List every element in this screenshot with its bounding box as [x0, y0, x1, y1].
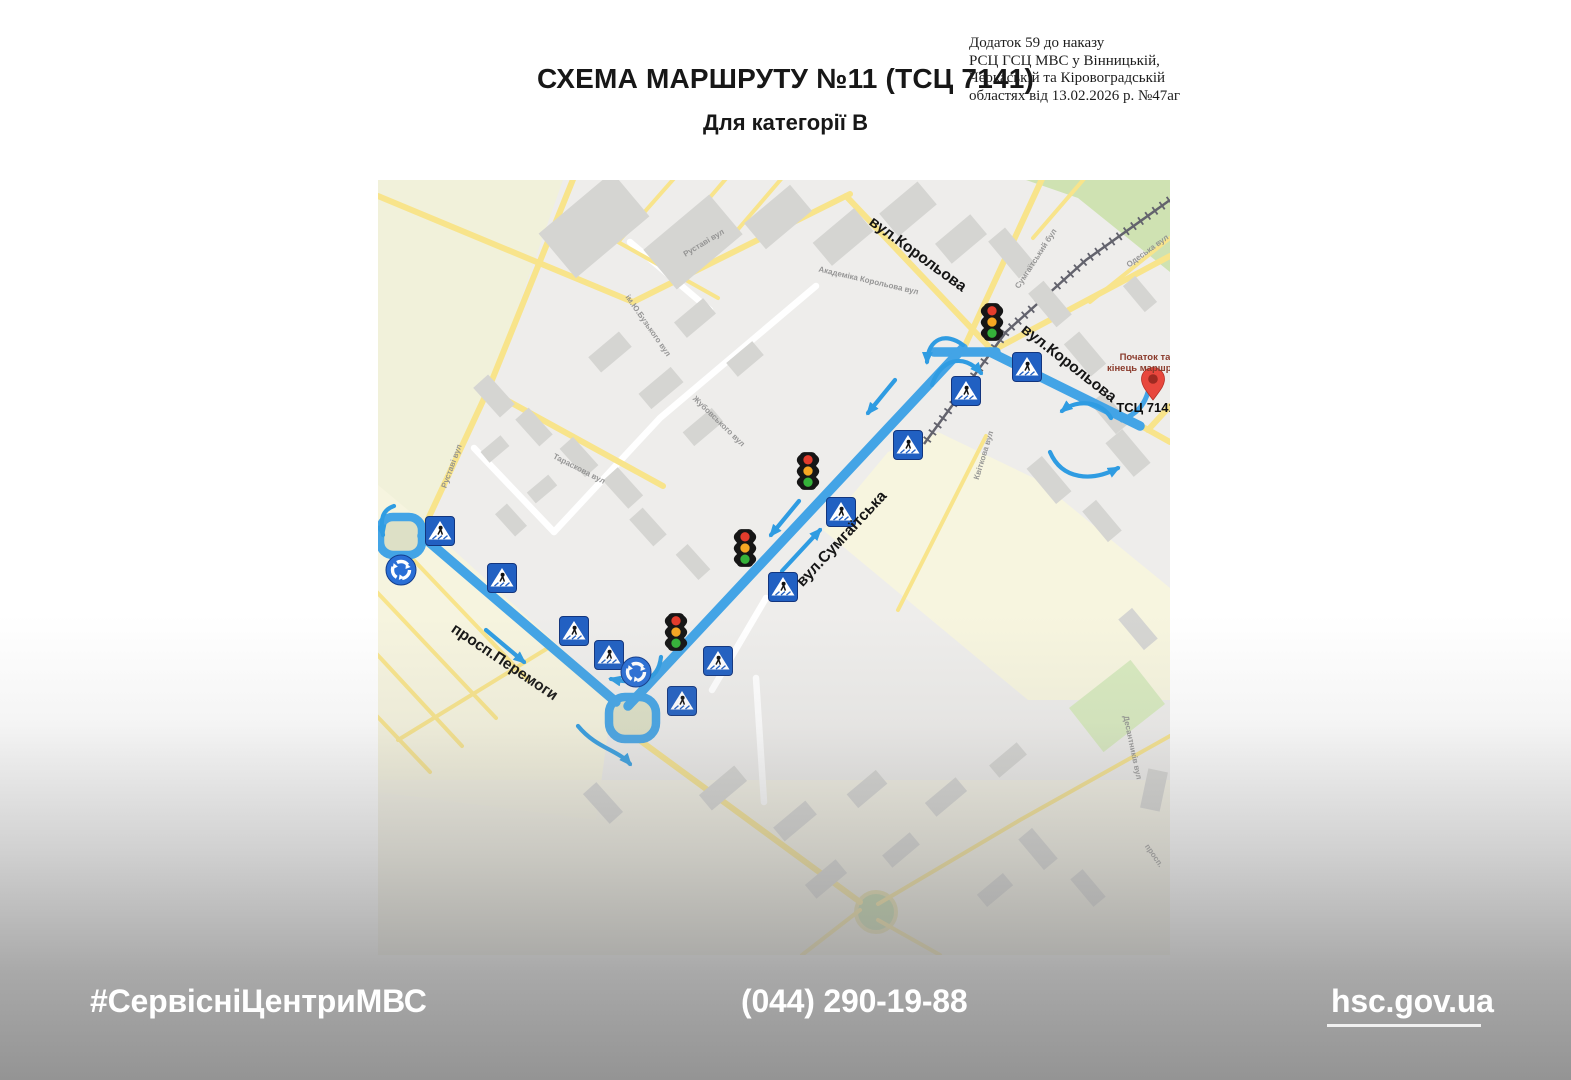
order-note-line: РСЦ ГСЦ МВС у Вінницькій, [969, 53, 1184, 71]
pedestrian-crossing-sign-icon [952, 377, 981, 406]
pedestrian-crossing-sign-icon [894, 431, 923, 460]
pedestrian-crossing-sign-icon [1013, 353, 1042, 382]
traffic-light-icon [981, 303, 1003, 341]
route-start-end-label-line2: кінець маршруту [1107, 363, 1170, 374]
order-note-line: Додаток 59 до наказу [969, 35, 1184, 53]
pedestrian-crossing-sign-icon [595, 641, 624, 670]
footer-website-underline [1327, 1024, 1481, 1027]
pedestrian-crossing-sign-icon [426, 517, 455, 546]
order-note-line: Черкаській та Кіровоградській [969, 70, 1184, 88]
route-loop-west [380, 517, 422, 555]
roundabout-sign-icon [386, 555, 416, 585]
pedestrian-crossing-sign-icon [769, 573, 798, 602]
footer-hashtag: #СервісніЦентриМВС [90, 983, 427, 1020]
route-map: вул.Корольовавул.Корольовавул.Сумгаїтськ… [378, 180, 1170, 955]
pedestrian-crossing-sign-icon [704, 647, 733, 676]
footer-website-link[interactable]: hsc.gov.ua [1331, 983, 1494, 1020]
traffic-light-icon [665, 613, 687, 651]
route-map-canvas: вул.Корольовавул.Корольовавул.Сумгаїтськ… [378, 180, 1170, 955]
order-note-line: областях від 13.02.2026 р. №47аг [969, 88, 1184, 106]
page-subtitle: Для категорії В [0, 110, 1571, 136]
pedestrian-crossing-sign-icon [560, 617, 589, 646]
pedestrian-crossing-sign-icon [668, 687, 697, 716]
pedestrian-crossing-sign-icon [488, 564, 517, 593]
traffic-light-icon [797, 452, 819, 490]
order-note: Додаток 59 до наказу РСЦ ГСЦ МВС у Вінни… [969, 35, 1184, 105]
page-title: СХЕМА МАРШРУТУ №11 (ТСЦ 7141) [0, 63, 1571, 95]
route-start-end-label-line1: Початок та [1120, 352, 1170, 363]
page: СХЕМА МАРШРУТУ №11 (ТСЦ 7141) Для катего… [0, 0, 1571, 1080]
footer-phone: (044) 290-19-88 [741, 983, 968, 1020]
roundabout-sign-icon [621, 657, 651, 687]
traffic-light-icon [734, 529, 756, 567]
tsc-7141-label: ТСЦ 7141 [1116, 400, 1170, 415]
